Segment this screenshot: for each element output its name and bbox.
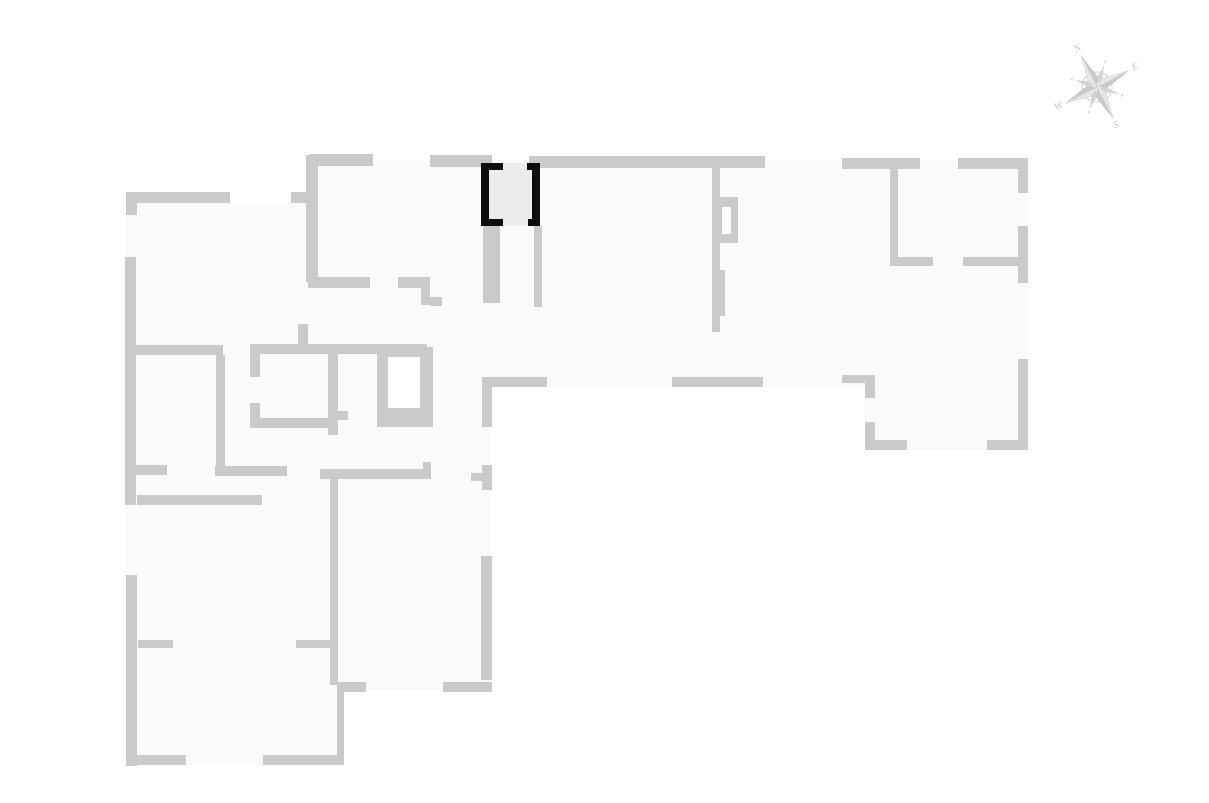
wall-segment bbox=[330, 473, 338, 685]
wall-segment bbox=[715, 270, 725, 316]
wall-segment bbox=[958, 158, 1028, 169]
highlighted-unit-wall bbox=[481, 163, 503, 170]
wall-segment bbox=[263, 755, 343, 765]
wall-segment bbox=[338, 411, 348, 420]
wall-segment bbox=[126, 203, 137, 215]
wall-segment bbox=[125, 257, 136, 505]
highlighted-unit-wall bbox=[527, 163, 540, 170]
wall-segment bbox=[126, 192, 230, 203]
wall-segment bbox=[306, 155, 318, 282]
wall-segment bbox=[482, 377, 492, 427]
wall-segment bbox=[529, 156, 765, 168]
floor-polygon bbox=[126, 345, 490, 765]
wall-segment bbox=[328, 350, 338, 435]
highlighted-unit-wall bbox=[528, 219, 540, 226]
wall-segment bbox=[481, 556, 492, 680]
wall-segment bbox=[259, 418, 330, 428]
compass-diagonal-tick bbox=[1120, 93, 1124, 98]
floor-plan-canvas: NESW bbox=[0, 0, 1209, 803]
wall-segment bbox=[842, 158, 920, 169]
wall-segment bbox=[250, 354, 260, 377]
wall-segment bbox=[443, 682, 492, 692]
wall-segment bbox=[890, 168, 898, 258]
wall-segment bbox=[423, 462, 431, 469]
wall-segment bbox=[126, 575, 137, 766]
door-frame-hole bbox=[722, 207, 731, 234]
wall-segment bbox=[296, 640, 333, 648]
wall-segment bbox=[482, 465, 492, 490]
floor-plan-svg: NESW bbox=[0, 0, 1209, 803]
wall-segment bbox=[672, 377, 763, 387]
wall-segment bbox=[471, 473, 483, 481]
highlighted-unit-wall bbox=[481, 163, 489, 226]
wall-segment bbox=[865, 440, 907, 450]
wall-segment bbox=[291, 192, 308, 203]
wall-segment bbox=[430, 297, 442, 306]
wall-segment bbox=[534, 226, 542, 307]
wall-segment bbox=[842, 375, 875, 383]
wall-segment bbox=[137, 495, 262, 505]
wall-segment bbox=[1018, 359, 1028, 450]
wall-segment bbox=[1018, 158, 1028, 193]
highlighted-unit-wall bbox=[532, 163, 540, 226]
compass-label-s: S bbox=[1112, 119, 1121, 131]
wall-segment bbox=[1018, 226, 1028, 283]
wall-segment bbox=[963, 257, 1018, 266]
wall-segment bbox=[987, 440, 1028, 450]
wall-segment bbox=[126, 755, 186, 765]
wall-segment bbox=[310, 154, 373, 166]
wall-segment bbox=[337, 685, 344, 765]
wall-segment bbox=[421, 288, 430, 305]
wall-segment bbox=[298, 324, 308, 344]
wall-segment bbox=[398, 277, 430, 288]
wall-segment bbox=[138, 640, 173, 648]
shaft-hole bbox=[388, 357, 420, 408]
compass-diagonal-tick bbox=[1070, 76, 1074, 81]
wall-segment bbox=[215, 466, 287, 476]
wall-segment bbox=[136, 465, 167, 475]
compass-diagonal-tick bbox=[1103, 60, 1108, 64]
floor-polygon bbox=[126, 192, 318, 345]
compass-diagonal-tick bbox=[1086, 110, 1091, 114]
wall-segment bbox=[483, 226, 500, 303]
wall-segment bbox=[308, 277, 370, 288]
door-frame bbox=[716, 197, 738, 243]
wall-segment bbox=[865, 383, 875, 398]
highlighted-unit-floor[interactable] bbox=[481, 163, 540, 226]
wall-segment bbox=[484, 377, 547, 387]
highlighted-unit[interactable] bbox=[481, 163, 540, 226]
wall-segment bbox=[890, 257, 933, 266]
wall-segment bbox=[216, 355, 225, 473]
compass-label-n: N bbox=[1071, 42, 1084, 56]
wall-segment bbox=[250, 403, 260, 428]
compass-label-w: W bbox=[1052, 99, 1066, 113]
compass-rose: NESW bbox=[1033, 23, 1160, 152]
wall-segment bbox=[136, 345, 223, 355]
highlighted-unit-wall bbox=[481, 219, 503, 226]
shaft bbox=[377, 347, 433, 427]
compass-label-e: E bbox=[1129, 61, 1140, 74]
